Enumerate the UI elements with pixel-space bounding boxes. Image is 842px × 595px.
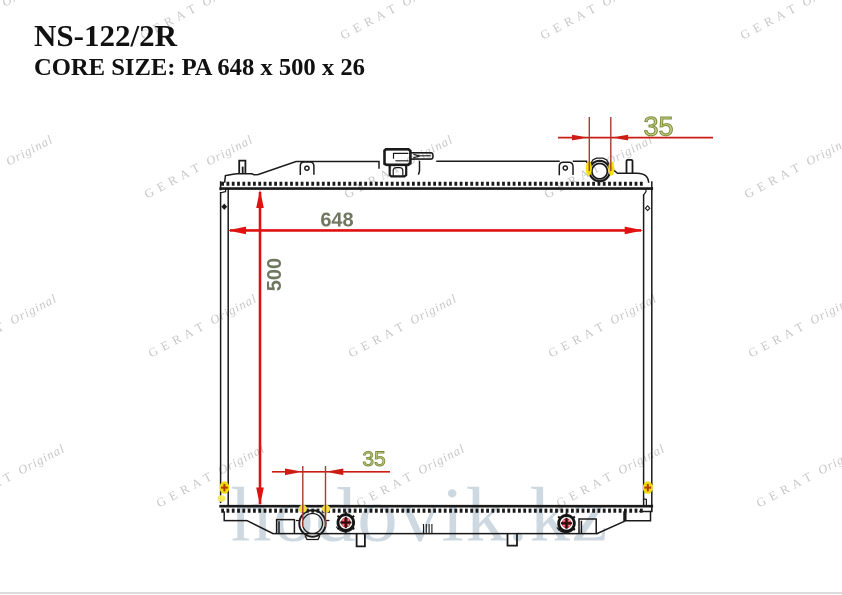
- svg-text:648: 648: [320, 210, 353, 232]
- svg-text:500: 500: [264, 258, 286, 291]
- svg-text:35: 35: [362, 448, 385, 471]
- svg-text:35: 35: [643, 112, 673, 142]
